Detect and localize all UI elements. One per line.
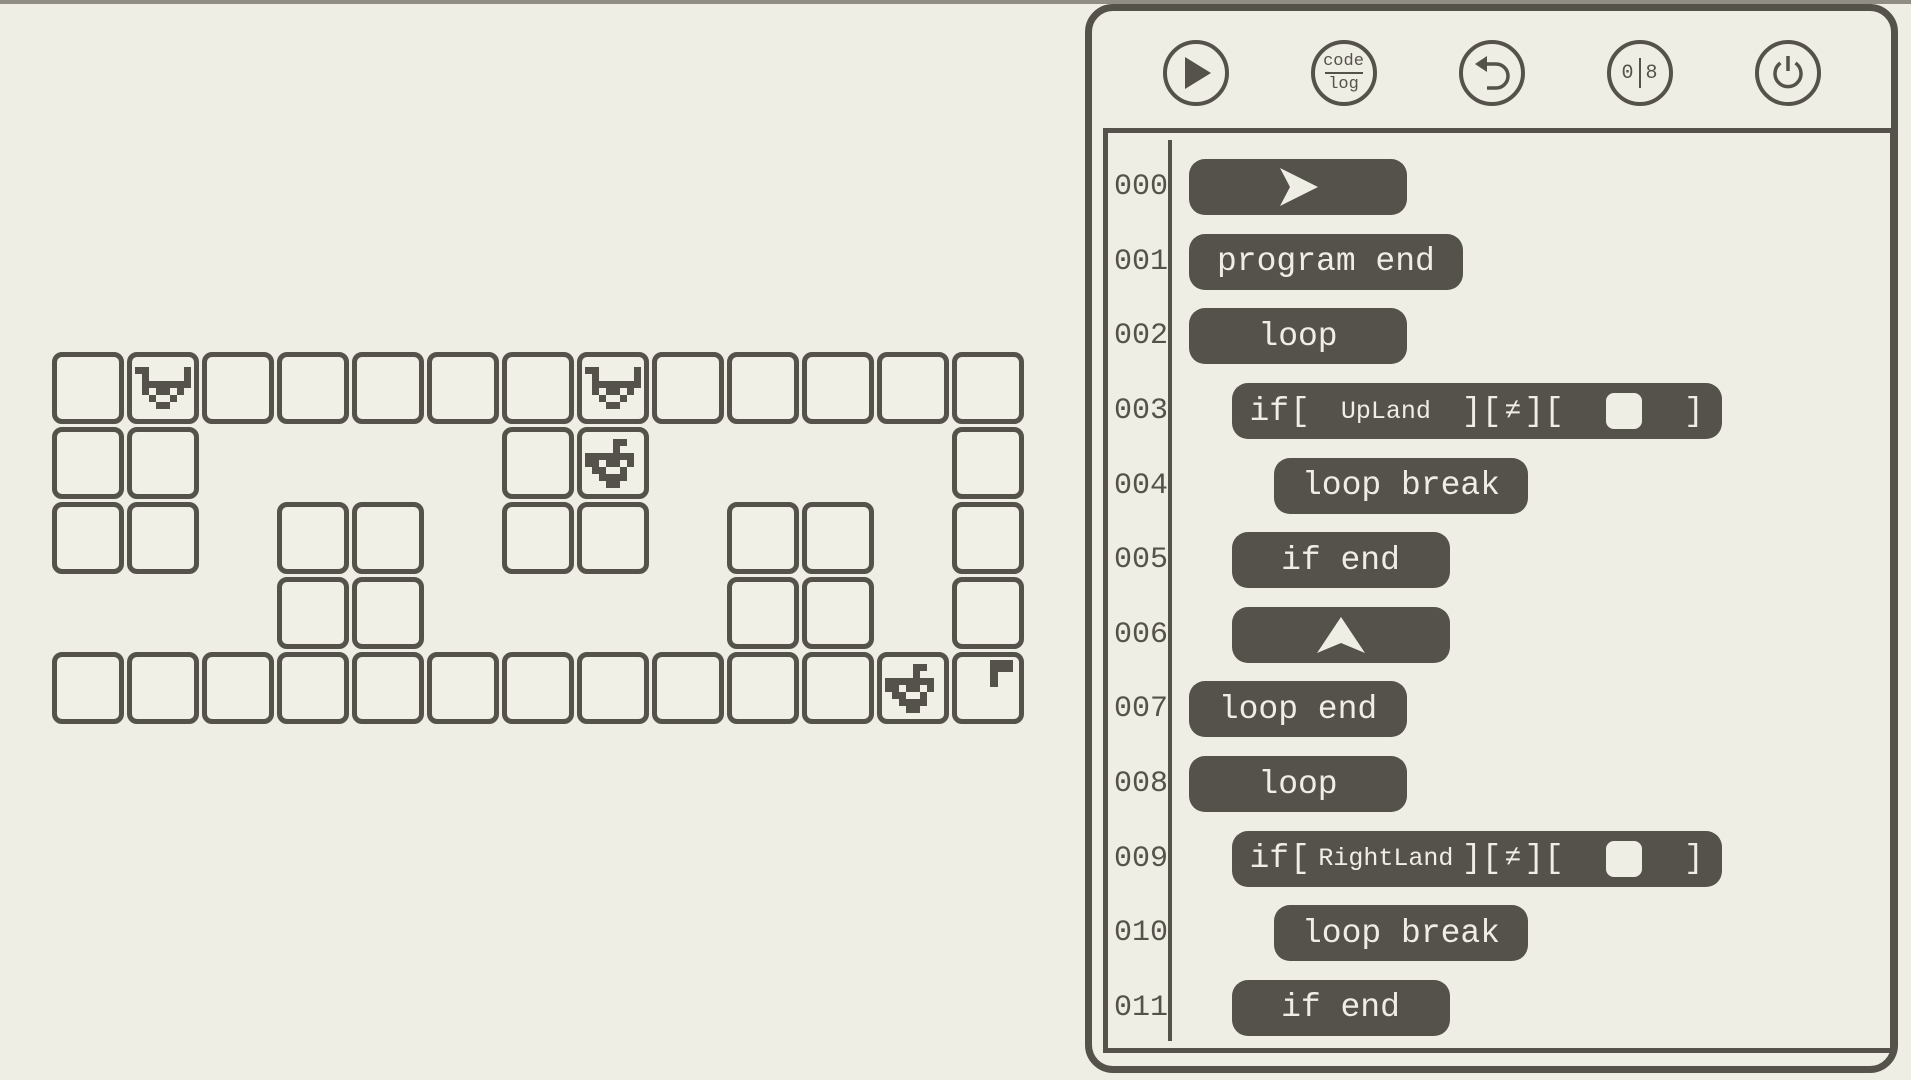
board-tile (652, 352, 724, 424)
condition-slot[interactable]: UpLand (1311, 397, 1461, 426)
line-number: 009 (1108, 842, 1173, 876)
code-log-button[interactable]: codelog (1311, 40, 1377, 106)
line-number: 004 (1108, 469, 1173, 503)
line-number: 008 (1108, 767, 1173, 801)
board-tile (127, 427, 199, 499)
bracket: ] (1684, 393, 1704, 430)
board-tile (352, 502, 424, 574)
play-icon (1176, 54, 1216, 92)
board-tile (427, 652, 499, 724)
program-line: 001 program end (1108, 225, 1890, 300)
board-tile (127, 652, 199, 724)
command-pill-loop-break[interactable]: loop break (1274, 458, 1528, 514)
cow-icon-facing-down (585, 439, 641, 488)
board-tile (652, 652, 724, 724)
command-pill-loop-break[interactable]: loop break (1274, 905, 1528, 961)
board-tile (52, 352, 124, 424)
board-tile (802, 577, 874, 649)
command-pill-program-end[interactable]: program end (1189, 234, 1463, 290)
line-number: 010 (1108, 916, 1173, 950)
board-tile (727, 352, 799, 424)
board-tile (952, 577, 1024, 649)
cow-icon-facing-up (585, 367, 641, 409)
undo-button[interactable] (1459, 40, 1525, 106)
condition-slot[interactable]: RightLand (1311, 844, 1461, 873)
flag-icon (990, 660, 1014, 688)
operator-slot[interactable]: ≠ (1503, 396, 1524, 427)
board-tile (202, 652, 274, 724)
board-tile (502, 352, 574, 424)
power-icon (1766, 51, 1810, 95)
cow-icon-facing-up (135, 367, 191, 409)
board-tile (577, 502, 649, 574)
program-line: 000 (1108, 150, 1890, 225)
binary-icon: 08 (1621, 58, 1657, 88)
board-tile (727, 652, 799, 724)
code-panel: codelog08 000 001 program end 002 loop 0… (1085, 4, 1898, 1073)
if-keyword: if (1250, 840, 1290, 877)
board-tile (52, 427, 124, 499)
toolbar: codelog08 (1092, 40, 1891, 106)
line-number: 002 (1108, 319, 1173, 353)
program-line: 004 loop break (1108, 448, 1890, 523)
bracket: ][ (1524, 393, 1564, 430)
line-number: 007 (1108, 692, 1173, 726)
line-number: 006 (1108, 618, 1173, 652)
board-tile (577, 652, 649, 724)
command-pill-forward-arrow[interactable] (1189, 159, 1407, 215)
empty-square-icon[interactable] (1606, 393, 1642, 429)
board-tile (802, 652, 874, 724)
board-tile (352, 577, 424, 649)
forward-arrow-icon (1274, 165, 1322, 209)
board-tile (727, 577, 799, 649)
undo-icon (1470, 51, 1514, 95)
command-pill-if-condition[interactable]: if[UpLand][≠][] (1232, 383, 1722, 439)
board-tile (802, 502, 874, 574)
program-line: 006 (1108, 598, 1890, 673)
board-tile (277, 502, 349, 574)
bracket: ][ (1462, 393, 1502, 430)
bracket: [ (1290, 393, 1310, 430)
program-line: 008 loop (1108, 747, 1890, 822)
empty-square-icon[interactable] (1606, 841, 1642, 877)
program-line: 010 loop break (1108, 896, 1890, 971)
board-tile (502, 427, 574, 499)
command-pill-loop[interactable]: loop (1189, 756, 1407, 812)
command-label: loop end (1219, 691, 1377, 728)
command-label: if end (1281, 989, 1400, 1026)
code-log-icon: codelog (1323, 53, 1364, 93)
up-arrow-icon (1315, 615, 1367, 655)
line-number: 003 (1108, 394, 1173, 428)
command-pill-if-end[interactable]: if end (1232, 980, 1450, 1036)
command-pill-if-condition[interactable]: if[RightLand][≠][] (1232, 831, 1722, 887)
board-tile (427, 352, 499, 424)
board-tile (277, 652, 349, 724)
line-number: 000 (1108, 170, 1173, 204)
board-tile (502, 502, 574, 574)
bracket: ][ (1524, 840, 1564, 877)
board-tile (727, 502, 799, 574)
command-label: program end (1217, 243, 1435, 280)
command-label: loop break (1302, 915, 1500, 952)
board-tile (277, 352, 349, 424)
line-number: 005 (1108, 543, 1173, 577)
board-tile (352, 352, 424, 424)
command-label: loop break (1302, 467, 1500, 504)
run-button[interactable] (1163, 40, 1229, 106)
board-tile (502, 652, 574, 724)
board-tile (52, 502, 124, 574)
board-tile (952, 427, 1024, 499)
program-line: 009 if[RightLand][≠][] (1108, 821, 1890, 896)
command-label: loop (1258, 766, 1337, 803)
bracket: ] (1684, 840, 1704, 877)
board-tile (802, 352, 874, 424)
board-tile (202, 352, 274, 424)
board (52, 352, 1027, 724)
program-line: 011 if end (1108, 971, 1890, 1046)
board-tile (52, 652, 124, 724)
program-line: 002 loop (1108, 299, 1890, 374)
command-label: if end (1281, 542, 1400, 579)
command-pill-loop[interactable]: loop (1189, 308, 1407, 364)
line-number: 011 (1108, 991, 1173, 1025)
board-tile (877, 352, 949, 424)
command-pill-if-end[interactable]: if end (1232, 532, 1450, 588)
board-tile (127, 502, 199, 574)
cow-icon-facing-down (885, 664, 941, 713)
program-line: 007 loop end (1108, 672, 1890, 747)
command-pill-loop-end[interactable]: loop end (1189, 681, 1407, 737)
program-rows: 000 001 program end 002 loop 003 if[UpLa… (1108, 150, 1890, 1045)
board-tile (277, 577, 349, 649)
operator-slot[interactable]: ≠ (1503, 843, 1524, 874)
program-line: 003 if[UpLand][≠][] (1108, 374, 1890, 449)
program-line: 005 if end (1108, 523, 1890, 598)
board-tile (952, 352, 1024, 424)
power-button[interactable] (1755, 40, 1821, 106)
board-tile (952, 502, 1024, 574)
bracket: ][ (1462, 840, 1502, 877)
bracket: [ (1290, 840, 1310, 877)
program-listing: 000 001 program end 002 loop 003 if[UpLa… (1103, 128, 1895, 1053)
line-number: 001 (1108, 245, 1173, 279)
if-keyword: if (1250, 393, 1290, 430)
command-label: loop (1258, 318, 1337, 355)
io-toggle-button[interactable]: 08 (1607, 40, 1673, 106)
command-pill-up-arrow[interactable] (1232, 607, 1450, 663)
board-tile (352, 652, 424, 724)
